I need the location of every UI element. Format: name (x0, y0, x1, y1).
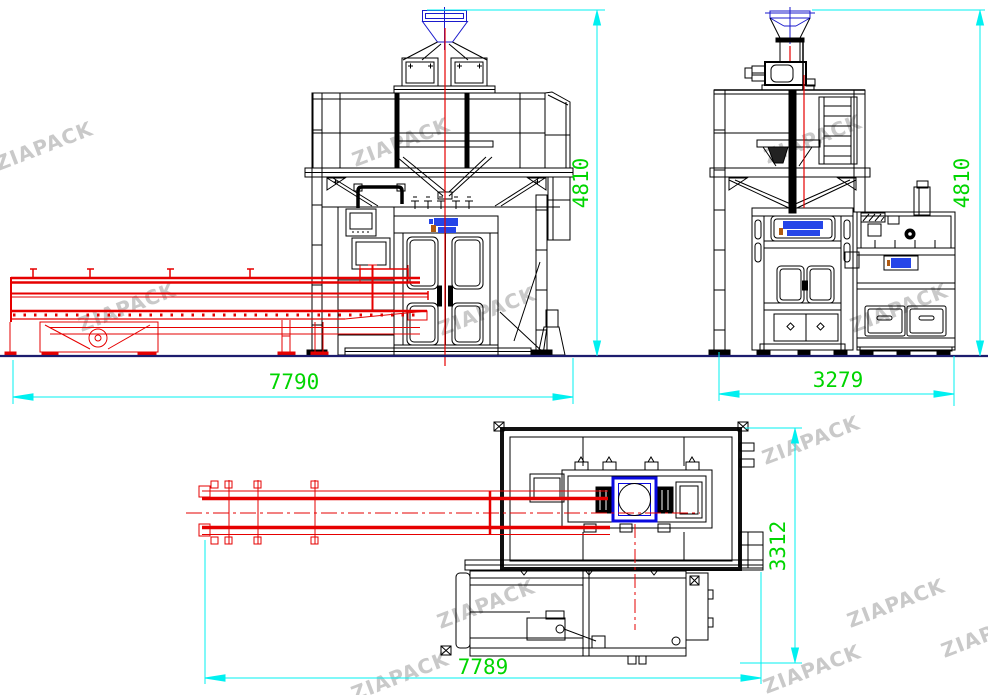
cad-drawing-canvas: ZIAPACK ZIAPACK ZIAPACK ZIAPACK ZIAPACK … (0, 0, 988, 695)
plan-conveyor-red (186, 480, 700, 630)
dim-front-height: 4810 (569, 158, 593, 209)
side-logo (779, 221, 823, 236)
cad-drawing-svg: 7790 4810 3279 4810 7789 3312 (0, 0, 988, 695)
plan-view (441, 422, 763, 664)
dim-front-width: 7790 (269, 370, 320, 394)
dim-side-width: 3279 (813, 368, 864, 392)
side-view (709, 7, 955, 356)
dim-plan-length: 7789 (458, 655, 509, 679)
cabinet-logo (887, 258, 911, 268)
plan-filler-blue-square (613, 478, 656, 521)
dimension-lines (13, 10, 985, 684)
dim-side-height: 4810 (950, 158, 974, 209)
front-view (305, 7, 573, 356)
front-conveyor-red (5, 28, 445, 366)
front-logo (429, 218, 458, 233)
dim-plan-depth: 3312 (766, 521, 790, 572)
